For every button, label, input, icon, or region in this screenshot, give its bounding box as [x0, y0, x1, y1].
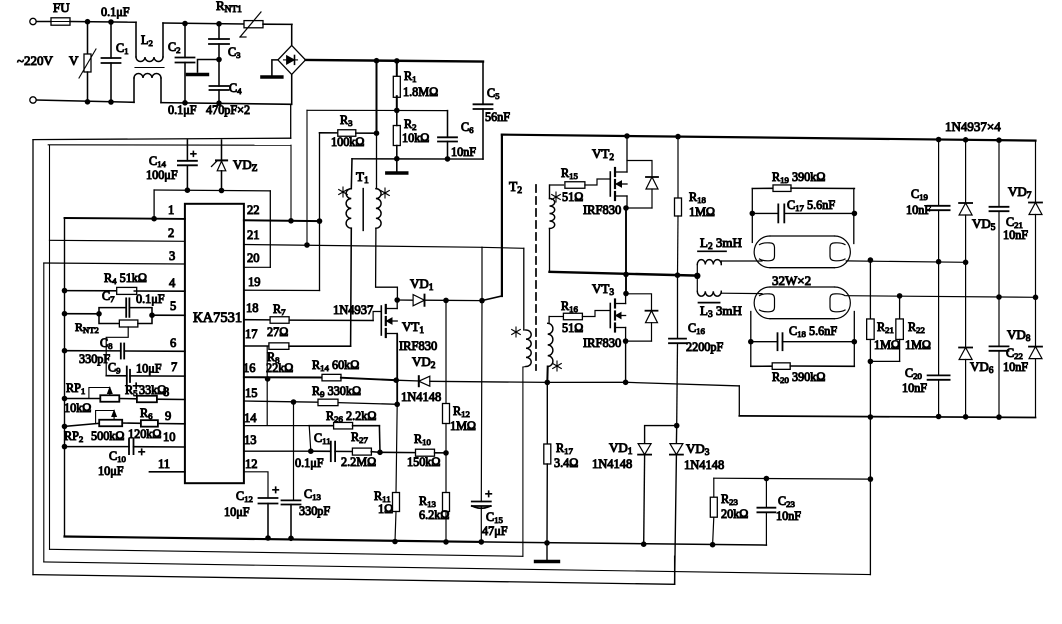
- svg-text:1N4148: 1N4148: [592, 457, 632, 471]
- svg-text:20kΩ: 20kΩ: [721, 507, 748, 521]
- svg-text:C17 5.6nF: C17 5.6nF: [787, 198, 835, 213]
- svg-text:13: 13: [244, 433, 257, 447]
- svg-text:22kΩ: 22kΩ: [266, 361, 293, 375]
- svg-text:18: 18: [246, 301, 259, 315]
- svg-text:V: V: [69, 53, 79, 68]
- svg-text:0.1μF: 0.1μF: [136, 292, 165, 306]
- svg-text:10nF: 10nF: [451, 145, 476, 159]
- svg-text:1Ω: 1Ω: [378, 502, 393, 516]
- svg-text:1N4148: 1N4148: [684, 458, 724, 472]
- svg-text:+: +: [272, 482, 279, 497]
- svg-text:+: +: [138, 444, 145, 459]
- svg-text:+: +: [190, 147, 197, 161]
- svg-text:10μF: 10μF: [224, 505, 250, 519]
- svg-text:~220V: ~220V: [17, 53, 54, 68]
- svg-text:100μF: 100μF: [146, 168, 178, 182]
- svg-text:1: 1: [168, 203, 174, 217]
- svg-text:10kΩ: 10kΩ: [402, 131, 429, 145]
- svg-text:150kΩ: 150kΩ: [407, 455, 440, 469]
- svg-text:33kΩ: 33kΩ: [139, 383, 166, 397]
- svg-text:15: 15: [245, 386, 258, 400]
- svg-text:10nF: 10nF: [906, 203, 931, 217]
- svg-text:2.2MΩ: 2.2MΩ: [341, 455, 376, 469]
- svg-text:330pF: 330pF: [299, 504, 330, 518]
- svg-text:IRF830: IRF830: [399, 339, 437, 353]
- svg-text:R14 60kΩ: R14 60kΩ: [312, 358, 359, 373]
- svg-text:C18 5.6nF: C18 5.6nF: [789, 324, 837, 339]
- svg-text:IRF830: IRF830: [583, 203, 621, 217]
- svg-text:1N4937: 1N4937: [333, 303, 373, 317]
- svg-text:6.2kΩ: 6.2kΩ: [419, 508, 449, 522]
- svg-text:L3 3mH: L3 3mH: [700, 303, 742, 320]
- svg-text:1MΩ: 1MΩ: [689, 205, 715, 219]
- svg-text:R26 2.2kΩ: R26 2.2kΩ: [326, 409, 376, 424]
- svg-text:56nF: 56nF: [485, 110, 510, 124]
- svg-text:9: 9: [165, 409, 171, 423]
- svg-text:R19 390kΩ: R19 390kΩ: [772, 170, 825, 185]
- svg-text:19: 19: [248, 275, 261, 289]
- svg-text:3.4Ω: 3.4Ω: [554, 456, 578, 470]
- svg-text:22: 22: [247, 203, 260, 217]
- svg-text:R9 330kΩ: R9 330kΩ: [312, 384, 361, 399]
- svg-text:16: 16: [243, 361, 256, 375]
- svg-text:2200pF: 2200pF: [686, 340, 723, 354]
- svg-text:1N4148: 1N4148: [401, 390, 441, 404]
- svg-text:20: 20: [247, 251, 260, 265]
- svg-text:0.1μF: 0.1μF: [168, 103, 197, 117]
- svg-text:L2 3mH: L2 3mH: [700, 235, 742, 252]
- svg-text:12: 12: [245, 457, 258, 471]
- svg-text:1MΩ: 1MΩ: [905, 338, 931, 352]
- svg-text:FU: FU: [53, 0, 70, 15]
- svg-text:10kΩ: 10kΩ: [64, 401, 91, 415]
- svg-text:10nF: 10nF: [902, 381, 927, 395]
- svg-text:32W×2: 32W×2: [772, 273, 811, 288]
- svg-text:11: 11: [158, 457, 170, 471]
- svg-text:2: 2: [168, 226, 174, 240]
- svg-text:3: 3: [169, 249, 175, 263]
- svg-text:10μF: 10μF: [98, 464, 124, 478]
- svg-text:51Ω: 51Ω: [562, 190, 583, 204]
- svg-text:6: 6: [170, 336, 176, 350]
- svg-text:470pF×2: 470pF×2: [206, 103, 250, 117]
- svg-text:10: 10: [163, 430, 176, 444]
- svg-text:КА7531: КА7531: [193, 310, 242, 326]
- svg-text:4: 4: [169, 276, 176, 290]
- svg-text:10nF: 10nF: [1003, 228, 1028, 242]
- svg-text:10nF: 10nF: [1003, 360, 1028, 374]
- svg-text:10μF: 10μF: [136, 362, 162, 376]
- svg-text:7: 7: [171, 360, 177, 374]
- svg-text:5: 5: [170, 299, 176, 313]
- svg-text:27Ω: 27Ω: [267, 325, 288, 339]
- svg-text:330pF: 330pF: [79, 352, 110, 366]
- svg-text:1.8MΩ: 1.8MΩ: [403, 85, 438, 99]
- svg-text:100kΩ: 100kΩ: [331, 135, 364, 149]
- svg-text:14: 14: [244, 411, 257, 425]
- svg-text:0.1μF: 0.1μF: [101, 5, 130, 19]
- svg-text:10nF: 10nF: [776, 509, 801, 523]
- svg-text:47μF: 47μF: [482, 524, 508, 538]
- svg-text:51Ω: 51Ω: [562, 321, 583, 335]
- svg-text:21: 21: [247, 228, 260, 242]
- svg-text:0.1μF: 0.1μF: [295, 456, 324, 470]
- svg-text:+: +: [485, 486, 492, 501]
- svg-text:1MΩ: 1MΩ: [450, 419, 476, 433]
- svg-text:500kΩ: 500kΩ: [91, 429, 124, 443]
- svg-text:R20 390kΩ: R20 390kΩ: [772, 370, 825, 385]
- svg-text:R4 51kΩ: R4 51kΩ: [104, 271, 147, 286]
- svg-text:1N4937×4: 1N4937×4: [945, 119, 1001, 134]
- svg-text:17: 17: [245, 327, 258, 341]
- svg-text:IRF830: IRF830: [583, 336, 621, 350]
